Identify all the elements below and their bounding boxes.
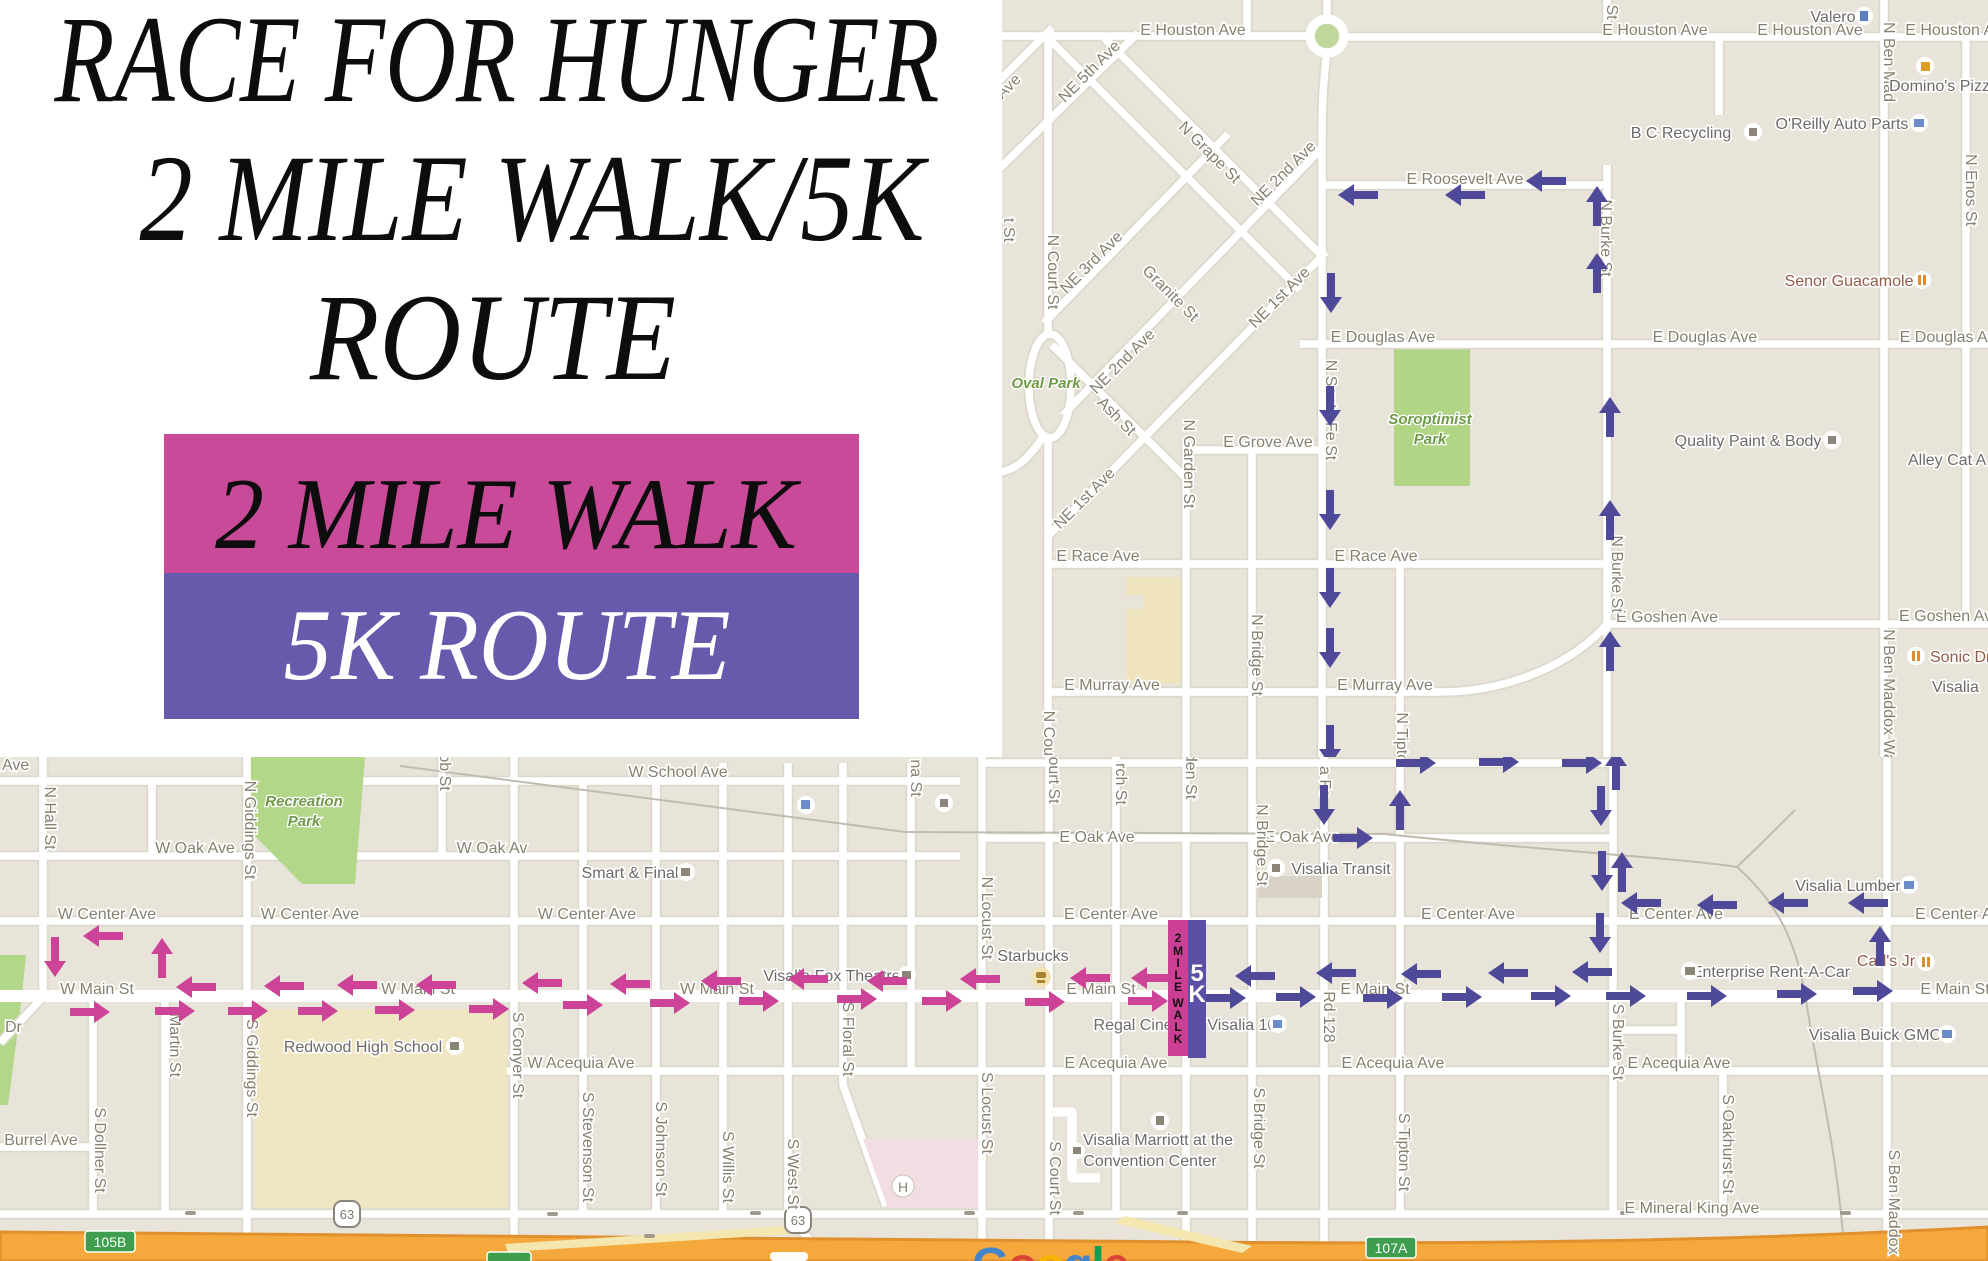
svg-text:Oval Park: Oval Park <box>1011 375 1081 392</box>
svg-text:E Douglas Ave: E Douglas Ave <box>1331 329 1436 346</box>
svg-text:W Center Ave: W Center Ave <box>58 906 157 923</box>
svg-text:K: K <box>1188 981 1206 1008</box>
svg-text:O'Reilly Auto Parts: O'Reilly Auto Parts <box>1776 116 1909 133</box>
svg-text:Enterprise Rent-A-Car: Enterprise Rent-A-Car <box>1692 964 1851 981</box>
svg-text:E Center Ave: E Center Ave <box>1421 906 1515 923</box>
svg-text:Quality Paint & Body: Quality Paint & Body <box>1675 433 1822 450</box>
svg-text:W Center Ave: W Center Ave <box>538 906 637 923</box>
svg-text:E Roosevelt Ave: E Roosevelt Ave <box>1406 171 1523 188</box>
svg-text:S Giddings St: S Giddings St <box>243 1019 260 1117</box>
svg-text:S Dollner St: S Dollner St <box>91 1107 108 1193</box>
svg-text:S Ben Maddox: S Ben Maddox <box>1885 1150 1902 1255</box>
svg-text:N Ben Maddox Way: N Ben Maddox Way <box>1880 629 1897 771</box>
svg-text:E Oak Ave: E Oak Ave <box>1059 829 1134 846</box>
svg-text:E Goshen Ave: E Goshen Ave <box>1616 609 1718 626</box>
svg-text:Dr: Dr <box>5 1019 23 1036</box>
svg-text:Ave: Ave <box>2 757 29 774</box>
svg-text:W School Ave: W School Ave <box>628 764 727 781</box>
svg-text:W Oak Ave: W Oak Ave <box>155 840 235 857</box>
svg-text:E Acequia Ave: E Acequia Ave <box>1342 1055 1445 1072</box>
svg-text:ob St: ob St <box>436 753 453 791</box>
svg-text:ROUTE: ROUTE <box>309 269 676 406</box>
svg-text:N Bridge St: N Bridge St <box>1248 614 1265 696</box>
svg-text:E Main St: E Main St <box>1066 981 1136 998</box>
svg-text:Visalia Lumber: Visalia Lumber <box>1795 878 1901 895</box>
svg-text:Soroptimist: Soroptimist <box>1388 411 1472 428</box>
svg-text:E Houston Ave: E Houston Ave <box>1140 22 1246 39</box>
svg-text:Burrel Ave: Burrel Ave <box>4 1132 78 1149</box>
svg-text:S West St: S West St <box>784 1139 801 1210</box>
svg-text:na St: na St <box>907 759 924 797</box>
svg-text:E Murray Ave: E Murray Ave <box>1337 677 1433 694</box>
svg-text:S Willis St: S Willis St <box>719 1131 736 1204</box>
svg-text:S Burke St: S Burke St <box>1609 1004 1626 1081</box>
svg-text:K: K <box>1174 1032 1183 1046</box>
svg-text:N Garden St: N Garden St <box>1180 420 1197 509</box>
svg-text:E: E <box>1174 980 1182 994</box>
svg-text:N Giddings St: N Giddings St <box>241 781 258 880</box>
svg-text:Rd 128: Rd 128 <box>1320 991 1337 1043</box>
svg-text:Martin St: Martin St <box>166 1013 183 1078</box>
svg-text:Park: Park <box>288 813 321 830</box>
svg-text:E Main St: E Main St <box>1920 981 1988 998</box>
svg-text:E Houston Ave: E Houston Ave <box>1602 22 1708 39</box>
svg-text:E Race Ave: E Race Ave <box>1056 548 1139 565</box>
svg-text:5K ROUTE: 5K ROUTE <box>284 589 731 702</box>
svg-text:S Floral St: S Floral St <box>839 1002 856 1077</box>
svg-text:S Johnson St: S Johnson St <box>652 1101 669 1197</box>
svg-text:Smart & Final: Smart & Final <box>582 865 679 882</box>
svg-text:E Acequia Ave: E Acequia Ave <box>1065 1055 1168 1072</box>
svg-text:Valero: Valero <box>1810 9 1855 26</box>
svg-text:Visalia Marriott at the: Visalia Marriott at the <box>1083 1132 1233 1149</box>
svg-text:W Center Ave: W Center Ave <box>261 906 360 923</box>
svg-text:Convention Center: Convention Center <box>1083 1153 1217 1170</box>
svg-text:RACE FOR HUNGER: RACE FOR HUNGER <box>54 0 940 128</box>
svg-text:N Bridge St: N Bridge St <box>1253 804 1270 886</box>
svg-text:Visalia: Visalia <box>1932 679 1979 696</box>
svg-text:63: 63 <box>791 1213 805 1228</box>
svg-text:S Bridge St: S Bridge St <box>1250 1088 1267 1169</box>
svg-text:E Race Ave: E Race Ave <box>1334 548 1417 565</box>
svg-text:107A: 107A <box>1375 1240 1408 1256</box>
svg-text:S Locust St: S Locust St <box>978 1072 995 1154</box>
svg-text:E Grove Ave: E Grove Ave <box>1223 434 1313 451</box>
svg-text:S Court St: S Court St <box>1046 1141 1063 1215</box>
svg-text:63: 63 <box>340 1207 354 1222</box>
svg-text:t St: t St <box>1000 218 1017 243</box>
svg-text:E Oak Ave: E Oak Ave <box>1264 829 1339 846</box>
svg-text:Starbucks: Starbucks <box>997 948 1068 965</box>
svg-text:E Center Ave: E Center Ave <box>1915 906 1988 923</box>
svg-text:W Main St: W Main St <box>60 981 134 998</box>
svg-text:ourt St: ourt St <box>1045 756 1062 804</box>
svg-text:N Hall St: N Hall St <box>41 786 58 850</box>
svg-text:Redwood High School: Redwood High School <box>284 1039 442 1056</box>
svg-text:W Acequia Ave: W Acequia Ave <box>527 1055 634 1072</box>
svg-text:S Oakhurst St: S Oakhurst St <box>1719 1094 1736 1194</box>
svg-text:E Douglas Ave: E Douglas Ave <box>1900 329 1988 346</box>
svg-text:den St: den St <box>1182 753 1199 800</box>
svg-text:H: H <box>898 1179 908 1195</box>
svg-text:E Center Ave: E Center Ave <box>1064 906 1158 923</box>
svg-text:Domino's Pizza: Domino's Pizza <box>1889 78 1988 95</box>
svg-text:B C Recycling: B C Recycling <box>1631 125 1731 142</box>
svg-text:2 MILE WALK/5K: 2 MILE WALK/5K <box>140 130 930 267</box>
svg-text:E Acequia Ave: E Acequia Ave <box>1628 1055 1731 1072</box>
svg-text:S Tipton St: S Tipton St <box>1395 1113 1412 1192</box>
svg-text:E Douglas Ave: E Douglas Ave <box>1653 329 1758 346</box>
svg-text:N Enos St: N Enos St <box>1962 154 1979 227</box>
svg-text:S Conyer St: S Conyer St <box>509 1012 526 1099</box>
svg-text:Sonic Driv: Sonic Driv <box>1930 649 1988 666</box>
svg-text:N Burke St: N Burke St <box>1608 535 1625 613</box>
svg-text:rch St: rch St <box>1112 763 1129 805</box>
svg-text:W Oak Av: W Oak Av <box>457 840 528 857</box>
svg-text:E Murray Ave: E Murray Ave <box>1064 677 1160 694</box>
svg-text:S Stevenson St: S Stevenson St <box>579 1092 596 1203</box>
svg-text:Carl's Jr: Carl's Jr <box>1857 953 1916 970</box>
svg-text:Recreation: Recreation <box>265 793 343 810</box>
svg-text:E Houston Ave: E Houston Ave <box>1905 22 1988 39</box>
svg-text:Park: Park <box>1414 431 1447 448</box>
svg-text:105B: 105B <box>94 1234 127 1250</box>
svg-text:Alley Cat A: Alley Cat A <box>1908 452 1987 469</box>
svg-text:St: St <box>1603 4 1620 20</box>
svg-text:2 MILE WALK: 2 MILE WALK <box>215 458 802 571</box>
svg-text:Google: Google <box>972 1239 1129 1261</box>
svg-text:Visalia Buick GMC: Visalia Buick GMC <box>1809 1027 1941 1044</box>
svg-text:N Court St: N Court St <box>1044 235 1061 310</box>
svg-text:2: 2 <box>1175 931 1182 945</box>
svg-text:Visalia Transit: Visalia Transit <box>1291 861 1391 878</box>
svg-text:E Goshen Ave: E Goshen Ave <box>1899 608 1988 625</box>
svg-text:Senor Guacamole: Senor Guacamole <box>1785 273 1914 290</box>
svg-text:E Mineral King Ave: E Mineral King Ave <box>1625 1200 1760 1217</box>
svg-text:N Locust St: N Locust St <box>978 877 995 960</box>
